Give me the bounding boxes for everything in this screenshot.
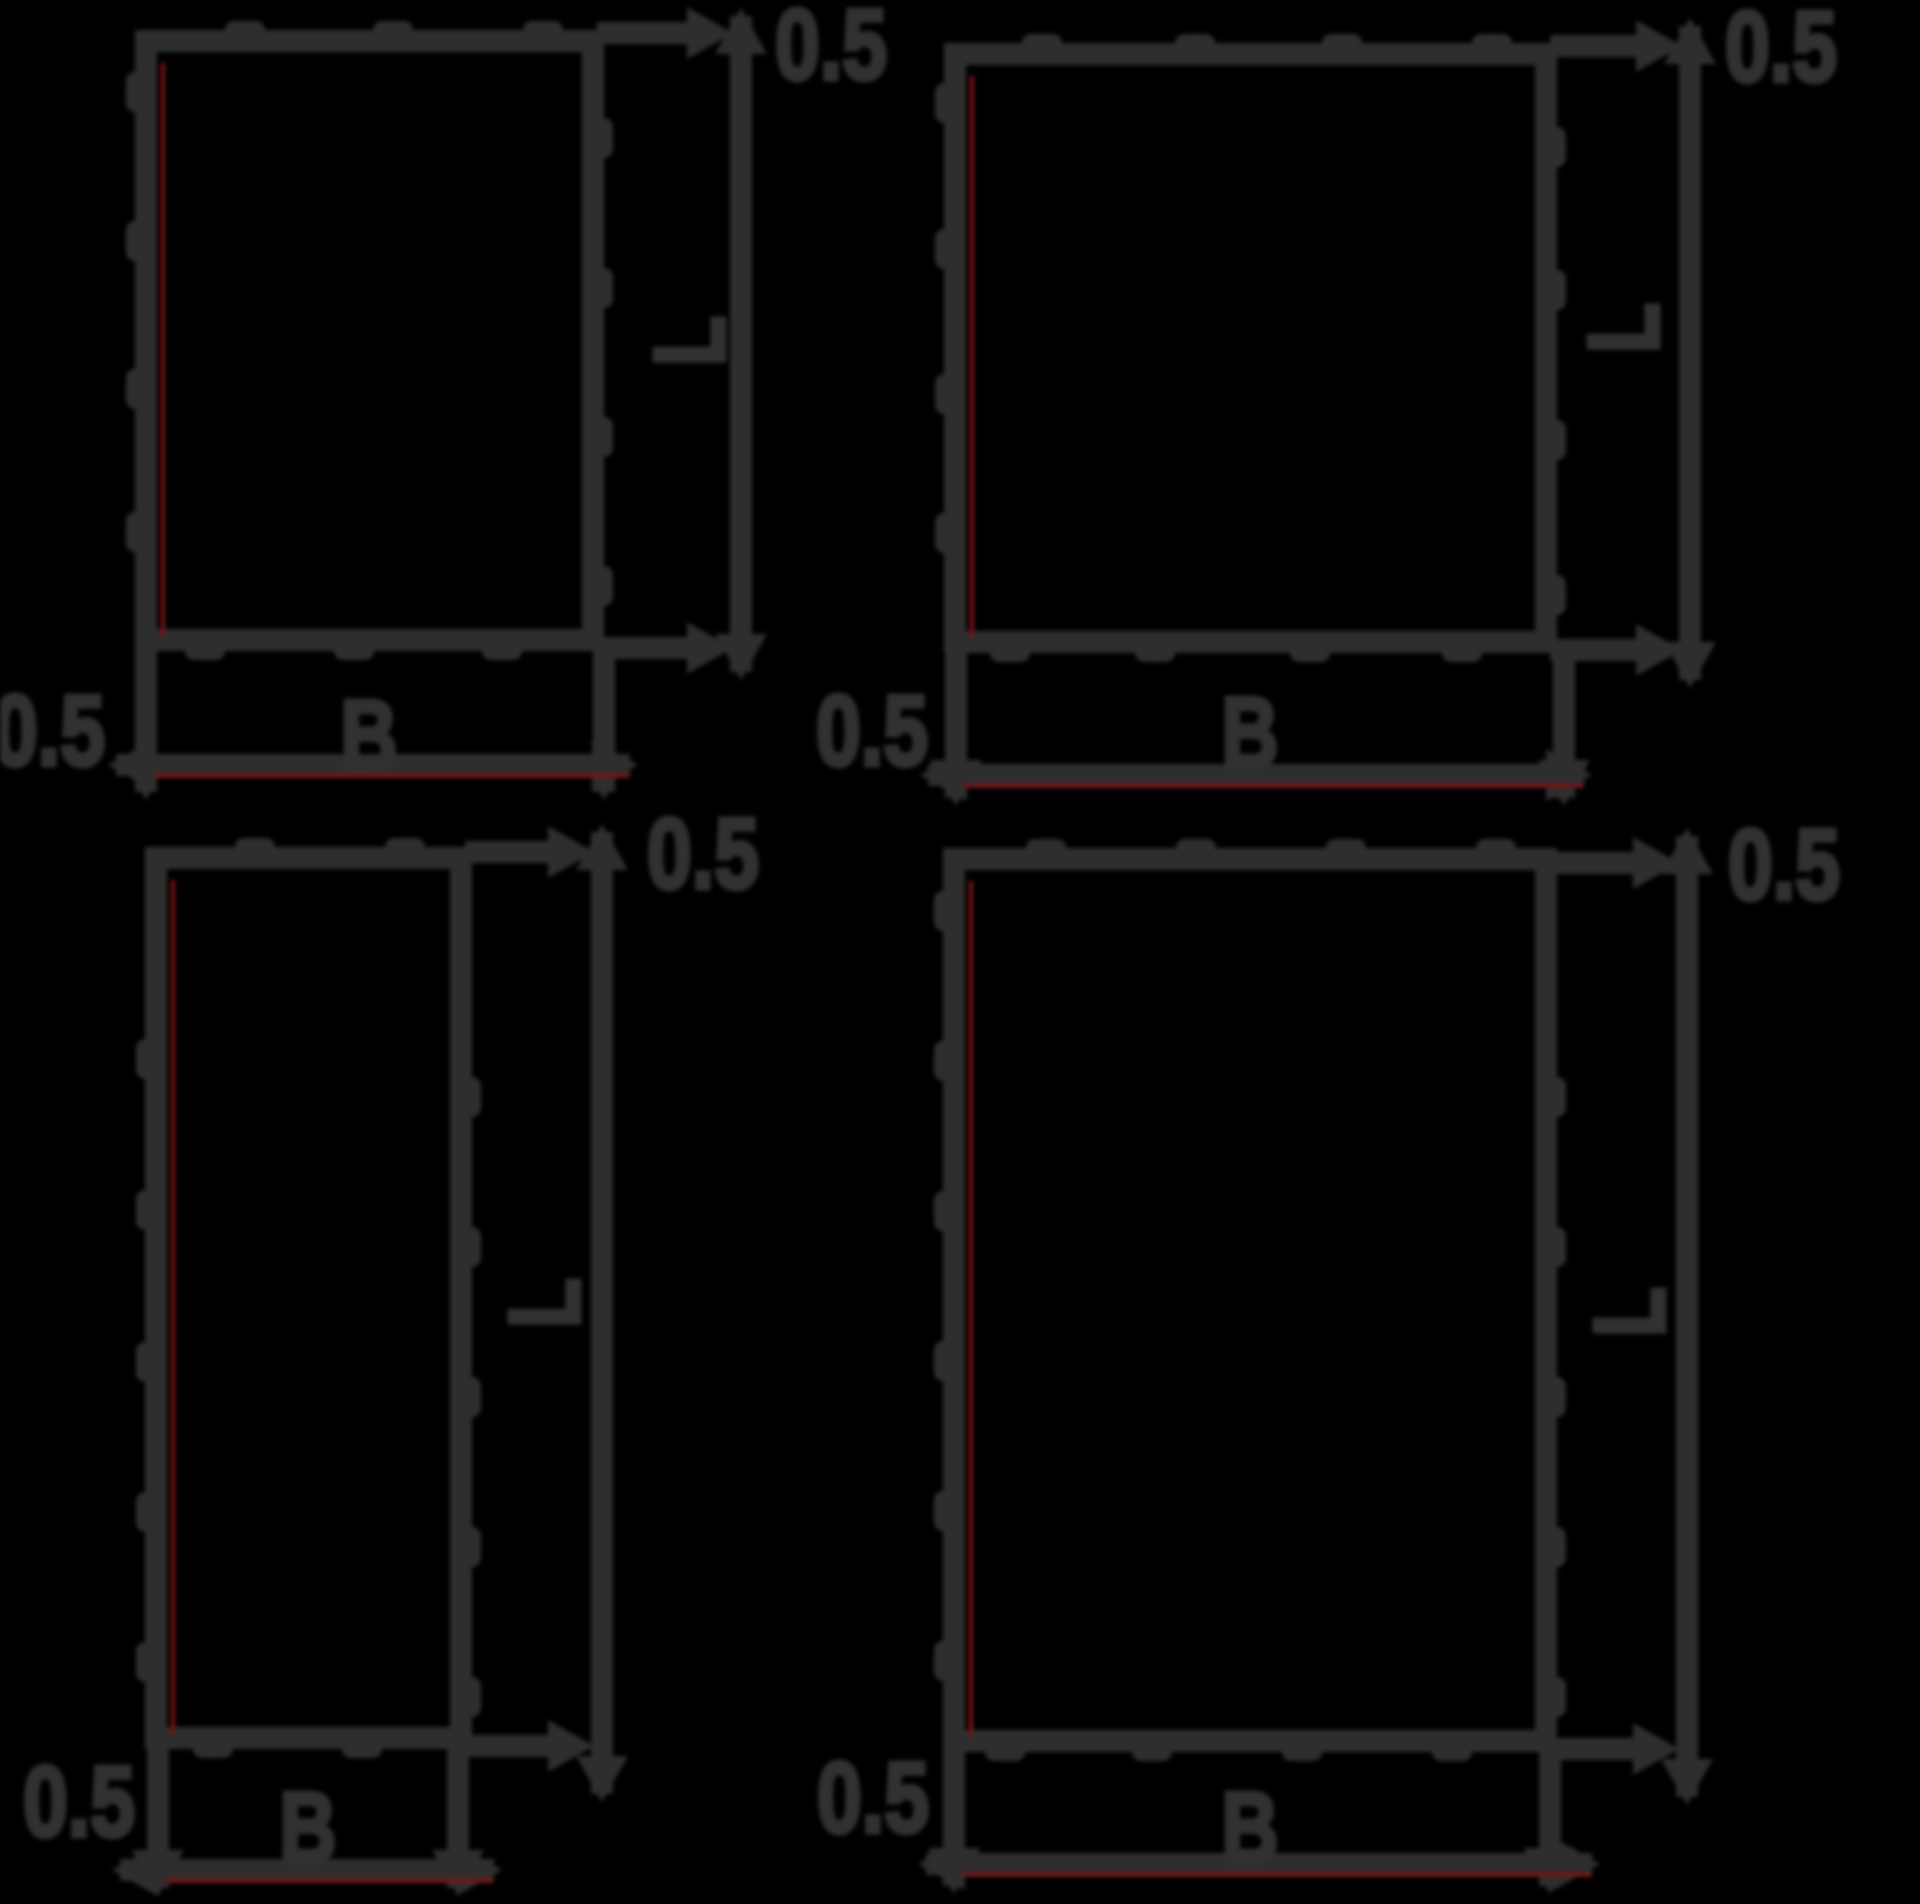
svg-text:0.5: 0.5 <box>23 1746 135 1858</box>
svg-text:B: B <box>1222 1772 1279 1884</box>
svg-text:B: B <box>341 680 398 792</box>
svg-text:0.5: 0.5 <box>817 1742 929 1854</box>
svg-text:L: L <box>1568 303 1680 353</box>
svg-text:L: L <box>1574 1287 1686 1337</box>
svg-text:L: L <box>489 1278 601 1328</box>
svg-text:B: B <box>1222 677 1279 789</box>
svg-text:0.5: 0.5 <box>1725 0 1837 103</box>
svg-text:0.5: 0.5 <box>0 675 105 787</box>
svg-text:0.5: 0.5 <box>1728 809 1840 921</box>
svg-text:B: B <box>280 1772 337 1884</box>
svg-text:0.5: 0.5 <box>647 798 759 910</box>
svg-text:0.5: 0.5 <box>816 675 928 787</box>
svg-text:L: L <box>634 316 746 366</box>
svg-text:0.5: 0.5 <box>775 0 887 101</box>
